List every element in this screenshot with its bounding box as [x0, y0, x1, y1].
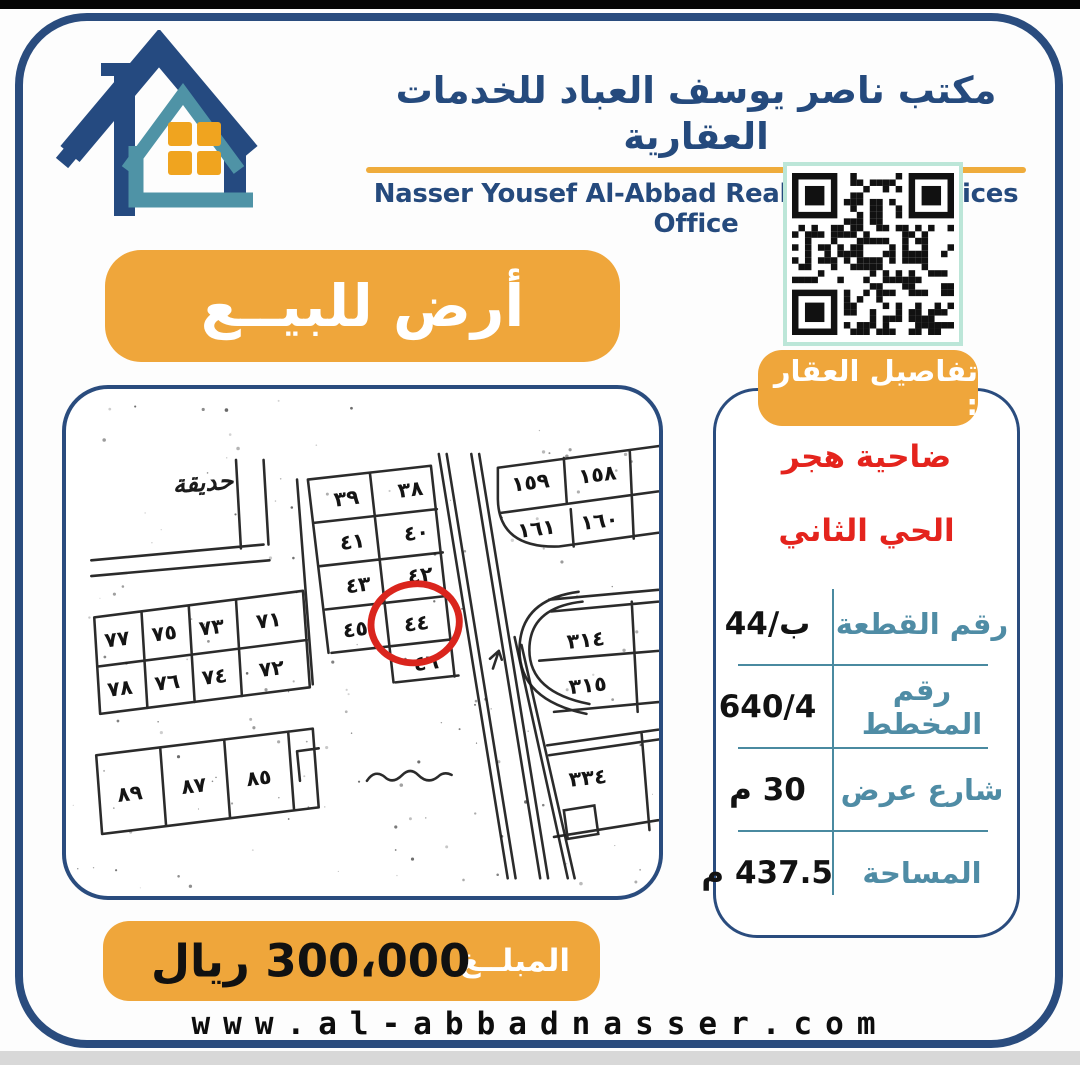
svg-text:٧٧: ٧٧ — [103, 626, 131, 653]
land-for-sale-banner: أرض للبيــع — [105, 250, 620, 362]
svg-text:٣١٥: ٣١٥ — [568, 671, 608, 699]
svg-text:١٥٩: ١٥٩ — [510, 468, 551, 496]
detail-row-street-width: 30 م شارع عرض — [716, 749, 1017, 830]
svg-text:٧٤: ٧٤ — [200, 663, 228, 690]
property-details-tag-label: تفاصيل العقار : — [758, 354, 978, 422]
svg-text:٧٣: ٧٣ — [198, 614, 226, 641]
logo-house-icon — [52, 30, 267, 235]
map-garden-label: حديقة — [172, 466, 235, 499]
area-label: المساحة — [833, 856, 1011, 890]
property-details-tag: تفاصيل العقار : — [758, 350, 978, 426]
plan-number-value: 640/4 — [702, 689, 833, 725]
svg-text:٨٥: ٨٥ — [245, 764, 273, 791]
svg-text:٤٣: ٤٣ — [344, 571, 372, 598]
svg-text:٤٥: ٤٥ — [341, 616, 369, 643]
street-width-label: شارع عرض — [833, 773, 1011, 807]
svg-text:٣٩: ٣٩ — [332, 485, 360, 512]
land-for-sale-label: أرض للبيــع — [201, 272, 525, 340]
detail-row-plan-number: 640/4 رقم المخطط — [716, 666, 1017, 747]
property-details-panel: ضاحية هجر الحي الثاني ب/44 رقم القطعة 64… — [713, 388, 1020, 938]
svg-text:٧٦: ٧٦ — [153, 669, 181, 696]
svg-text:٨٩: ٨٩ — [116, 780, 144, 807]
svg-text:١٦١: ١٦١ — [516, 515, 556, 543]
office-title-arabic: مكتب ناصر يوسف العباد للخدمات العقارية — [360, 68, 1032, 161]
plot-number-value: ب/44 — [702, 606, 833, 642]
qr-code-icon — [792, 171, 954, 337]
svg-text:٤٠: ٤٠ — [402, 519, 430, 546]
svg-text:٣١٤: ٣١٤ — [566, 626, 606, 654]
svg-text:١٦٠: ١٦٠ — [579, 507, 619, 535]
svg-text:٨٧: ٨٧ — [180, 772, 208, 799]
map-bottom-block — [96, 729, 451, 834]
location-line-2: الحي الثاني — [716, 513, 1017, 549]
svg-text:٧٥: ٧٥ — [150, 620, 178, 647]
cadastral-map: حديقة ٣٩ ٣٨ ٤١ ٤٠ ٤٣ ٤٢ ٤٥ ٤٤ ٤٦ ٧٧ ٧٥ ٧… — [66, 389, 659, 896]
price-value: 300،000 ريال — [151, 935, 470, 988]
map-plot-numbers: ٣٩ ٣٨ ٤١ ٤٠ ٤٣ ٤٢ ٤٥ ٤٤ ٤٦ ٧٧ ٧٥ ٧٣ ٧١ ٧… — [103, 460, 620, 807]
top-black-strip — [0, 0, 1080, 9]
svg-text:٣٣٤: ٣٣٤ — [568, 764, 608, 792]
price-banner: المبلــغ 300،000 ريال — [103, 921, 600, 1001]
detail-row-area: 437.5 م المساحة — [716, 832, 1017, 913]
bottom-gray-strip — [0, 1051, 1080, 1065]
price-label: المبلــغ — [459, 943, 570, 979]
svg-text:٣٨: ٣٨ — [396, 476, 424, 503]
svg-text:٤٤: ٤٤ — [402, 610, 430, 637]
details-table: ب/44 رقم القطعة 640/4 رقم المخطط 30 م شا… — [716, 583, 1017, 909]
svg-text:٤١: ٤١ — [338, 528, 366, 555]
svg-text:٧٨: ٧٨ — [106, 675, 134, 702]
logo-window-icon — [168, 122, 221, 175]
cadastral-map-panel: حديقة ٣٩ ٣٨ ٤١ ٤٠ ٤٣ ٤٢ ٤٥ ٤٤ ٤٦ ٧٧ ٧٥ ٧… — [62, 385, 663, 900]
area-value: 437.5 م — [702, 855, 833, 891]
svg-text:١٥٨: ١٥٨ — [577, 460, 618, 488]
street-width-value: 30 م — [702, 772, 833, 808]
plan-number-label: رقم المخطط — [833, 673, 1011, 741]
map-main-road — [439, 454, 575, 878]
svg-text:٧١: ٧١ — [255, 607, 283, 634]
detail-row-plot-number: ب/44 رقم القطعة — [716, 583, 1017, 664]
website-link[interactable]: www.al-abbadnasser.com — [0, 1006, 1080, 1042]
qr-code — [783, 162, 963, 346]
plot-number-label: رقم القطعة — [833, 607, 1011, 641]
svg-text:٧٢: ٧٢ — [258, 655, 286, 682]
real-estate-poster: مكتب ناصر يوسف العباد للخدمات العقارية N… — [0, 0, 1080, 1065]
location-line-1: ضاحية هجر — [716, 439, 1017, 475]
